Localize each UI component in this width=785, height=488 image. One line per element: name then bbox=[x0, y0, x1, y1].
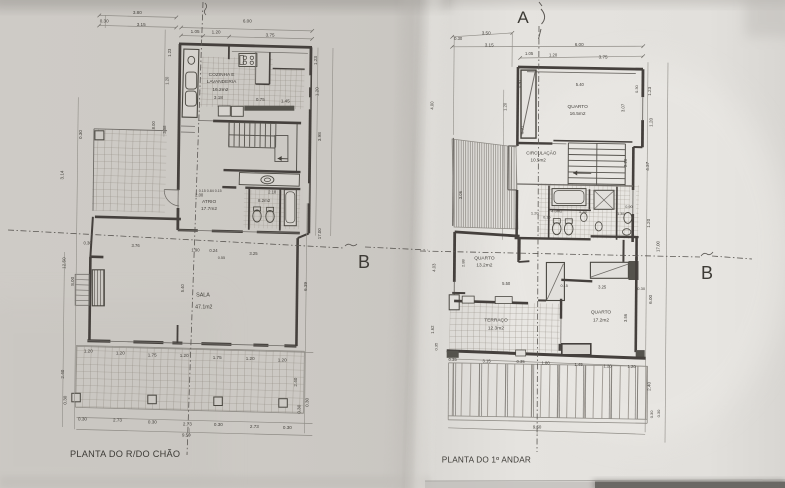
svg-text:B: B bbox=[358, 252, 370, 272]
svg-text:3.58: 3.58 bbox=[162, 125, 167, 134]
svg-text:SALA: SALA bbox=[196, 293, 210, 299]
svg-text:1.45: 1.45 bbox=[575, 362, 584, 367]
svg-text:16.5m2: 16.5m2 bbox=[570, 111, 586, 117]
svg-text:2.73: 2.73 bbox=[183, 421, 192, 426]
svg-text:0.90: 0.90 bbox=[625, 205, 632, 209]
svg-text:1.75: 1.75 bbox=[148, 352, 157, 357]
svg-text:1.75: 1.75 bbox=[213, 355, 222, 360]
svg-text:5.50: 5.50 bbox=[502, 281, 511, 286]
svg-text:17.2m2: 17.2m2 bbox=[593, 318, 609, 324]
svg-text:CIRCULAÇÃO: CIRCULAÇÃO bbox=[526, 149, 557, 155]
svg-text:0.30: 0.30 bbox=[297, 404, 302, 413]
svg-text:3.75: 3.75 bbox=[266, 32, 275, 37]
svg-text:4.00: 4.00 bbox=[430, 101, 435, 110]
svg-text:1.20: 1.20 bbox=[315, 87, 320, 96]
svg-text:3.15: 3.15 bbox=[485, 43, 494, 48]
svg-text:PLANTA DO 1º ANDAR: PLANTA DO 1º ANDAR bbox=[442, 456, 531, 465]
svg-text:1.80: 1.80 bbox=[542, 361, 551, 366]
svg-text:0.30: 0.30 bbox=[63, 395, 68, 404]
svg-text:3.15: 3.15 bbox=[137, 22, 146, 27]
svg-text:2.40: 2.40 bbox=[293, 377, 298, 386]
svg-text:QUARTO: QUARTO bbox=[591, 310, 612, 316]
svg-text:0.30: 0.30 bbox=[656, 409, 661, 418]
svg-text:3.75: 3.75 bbox=[599, 55, 608, 60]
svg-text:6.00: 6.00 bbox=[243, 19, 252, 24]
svg-text:1.90: 1.90 bbox=[191, 247, 200, 252]
svg-text:1.05: 1.05 bbox=[525, 51, 534, 56]
svg-text:1.20: 1.20 bbox=[246, 356, 255, 361]
svg-text:0.55: 0.55 bbox=[218, 256, 225, 260]
svg-text:1.20: 1.20 bbox=[604, 364, 613, 369]
svg-text:5.40: 5.40 bbox=[180, 283, 185, 292]
svg-text:8.00: 8.00 bbox=[151, 121, 156, 130]
svg-text:16.2m2: 16.2m2 bbox=[212, 87, 228, 93]
svg-text:0.30: 0.30 bbox=[214, 422, 223, 427]
svg-text:PLANTA DO R/DO CHÃO: PLANTA DO R/DO CHÃO bbox=[70, 449, 180, 459]
svg-text:2.18: 2.18 bbox=[268, 189, 277, 194]
svg-text:A: A bbox=[517, 8, 529, 27]
svg-text:2.20: 2.20 bbox=[623, 158, 628, 167]
svg-text:1.35: 1.35 bbox=[579, 209, 588, 214]
svg-text:0.30: 0.30 bbox=[634, 84, 639, 93]
svg-text:0.30: 0.30 bbox=[148, 419, 157, 424]
svg-text:1.20: 1.20 bbox=[503, 102, 508, 111]
svg-text:0.35: 0.35 bbox=[434, 342, 439, 351]
svg-text:1.20: 1.20 bbox=[649, 117, 654, 126]
svg-text:1.20: 1.20 bbox=[165, 76, 170, 85]
svg-text:2.73: 2.73 bbox=[113, 418, 122, 423]
svg-text:ATRIO: ATRIO bbox=[202, 199, 217, 205]
svg-text:3.50: 3.50 bbox=[482, 30, 491, 35]
svg-text:0.15: 0.15 bbox=[561, 284, 568, 288]
svg-text:13.2m2: 13.2m2 bbox=[476, 262, 492, 268]
svg-text:4.03: 4.03 bbox=[431, 263, 436, 272]
svg-text:3.25: 3.25 bbox=[249, 251, 258, 256]
svg-text:1.20: 1.20 bbox=[646, 218, 651, 227]
svg-text:1.20: 1.20 bbox=[180, 353, 189, 358]
svg-text:0.30: 0.30 bbox=[649, 410, 654, 419]
svg-text:3.06: 3.06 bbox=[458, 190, 463, 199]
svg-text:4.0m2: 4.0m2 bbox=[551, 209, 563, 214]
svg-text:3.07: 3.07 bbox=[621, 103, 626, 112]
svg-text:0.30: 0.30 bbox=[517, 79, 522, 88]
svg-text:1.20: 1.20 bbox=[116, 351, 125, 356]
svg-text:17.00: 17.00 bbox=[317, 228, 322, 240]
svg-text:LAVANDERIA: LAVANDERIA bbox=[207, 79, 237, 85]
svg-text:0.30: 0.30 bbox=[78, 417, 87, 422]
svg-text:8.00: 8.00 bbox=[70, 276, 75, 285]
svg-text:5.40: 5.40 bbox=[576, 82, 585, 87]
svg-text:6.00: 6.00 bbox=[648, 294, 653, 303]
svg-text:1.20: 1.20 bbox=[212, 29, 221, 34]
svg-text:3.18: 3.18 bbox=[214, 95, 223, 100]
svg-text:2.40: 2.40 bbox=[647, 381, 652, 390]
svg-text:3.25: 3.25 bbox=[598, 285, 607, 290]
svg-text:3.15: 3.15 bbox=[483, 359, 492, 364]
svg-text:3.76: 3.76 bbox=[132, 243, 141, 248]
svg-text:3.98: 3.98 bbox=[317, 132, 322, 141]
svg-text:1.20: 1.20 bbox=[628, 364, 637, 369]
svg-text:B: B bbox=[701, 263, 713, 283]
svg-text:0.30: 0.30 bbox=[78, 130, 83, 139]
svg-text:0.35: 0.35 bbox=[517, 359, 526, 364]
svg-text:1.20: 1.20 bbox=[278, 358, 287, 363]
svg-text:9.50: 9.50 bbox=[182, 432, 191, 437]
svg-text:12.3m2: 12.3m2 bbox=[488, 326, 504, 332]
svg-text:4.37: 4.37 bbox=[645, 161, 650, 170]
svg-text:TERRAÇO: TERRAÇO bbox=[484, 318, 508, 324]
svg-text:1.35: 1.35 bbox=[617, 212, 624, 216]
svg-text:2.40: 2.40 bbox=[60, 369, 65, 378]
svg-text:1.20: 1.20 bbox=[84, 349, 93, 354]
svg-text:0.30: 0.30 bbox=[84, 241, 93, 246]
svg-text:0.30: 0.30 bbox=[305, 397, 310, 406]
svg-text:0.24: 0.24 bbox=[209, 248, 218, 253]
svg-text:0.35: 0.35 bbox=[449, 357, 458, 362]
svg-text:17.00: 17.00 bbox=[656, 240, 661, 252]
svg-text:2.73: 2.73 bbox=[250, 424, 259, 429]
svg-text:0.30: 0.30 bbox=[100, 19, 109, 24]
svg-text:6.00: 6.00 bbox=[575, 42, 584, 47]
svg-text:47.1m2: 47.1m2 bbox=[195, 305, 212, 311]
svg-text:12.50: 12.50 bbox=[61, 257, 66, 269]
svg-text:0.15 0.84 0.15: 0.15 0.84 0.15 bbox=[199, 189, 222, 193]
svg-text:1.45: 1.45 bbox=[281, 99, 290, 104]
svg-text:6.39: 6.39 bbox=[303, 281, 308, 290]
svg-text:8.2m2: 8.2m2 bbox=[258, 198, 271, 203]
svg-text:COZINHA E: COZINHA E bbox=[209, 72, 235, 78]
svg-text:17.7m2: 17.7m2 bbox=[201, 206, 217, 212]
svg-text:1.05: 1.05 bbox=[191, 29, 200, 34]
svg-text:0.30: 0.30 bbox=[520, 125, 525, 134]
svg-text:0.75: 0.75 bbox=[256, 97, 265, 102]
svg-text:1.23: 1.23 bbox=[647, 86, 652, 95]
svg-text:1.62: 1.62 bbox=[430, 325, 435, 334]
svg-text:3.56: 3.56 bbox=[623, 313, 628, 322]
svg-text:3.80: 3.80 bbox=[133, 10, 142, 15]
svg-text:0.15: 0.15 bbox=[543, 216, 550, 220]
svg-text:1.23: 1.23 bbox=[167, 48, 172, 57]
svg-text:1.20: 1.20 bbox=[549, 53, 558, 58]
svg-text:QUARTO: QUARTO bbox=[474, 255, 495, 261]
svg-text:QUARTO: QUARTO bbox=[568, 104, 589, 110]
svg-text:1.23: 1.23 bbox=[313, 56, 318, 65]
svg-text:0.30: 0.30 bbox=[283, 425, 292, 430]
svg-text:3.14: 3.14 bbox=[59, 170, 64, 179]
svg-text:0.30: 0.30 bbox=[637, 286, 646, 291]
svg-text:0.30: 0.30 bbox=[454, 36, 463, 41]
svg-text:2.88: 2.88 bbox=[460, 258, 465, 267]
